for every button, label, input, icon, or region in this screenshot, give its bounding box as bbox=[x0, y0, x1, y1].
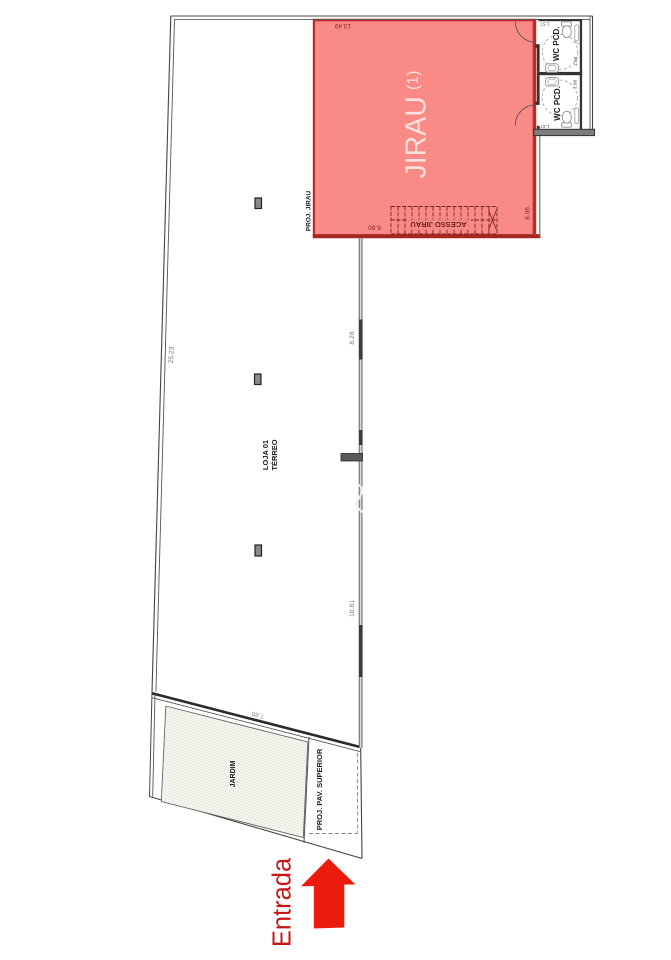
svg-text:1.98: 1.98 bbox=[573, 57, 579, 67]
svg-text:WC PCD.: WC PCD. bbox=[552, 26, 561, 61]
svg-text:8.28: 8.28 bbox=[349, 331, 356, 344]
svg-text:PROJ. JIRAU: PROJ. JIRAU bbox=[305, 191, 312, 232]
svg-text:PROJ. PAV. SUPERIOR: PROJ. PAV. SUPERIOR bbox=[315, 748, 324, 830]
svg-text:TÉRREO: TÉRREO bbox=[270, 439, 279, 470]
svg-text:13.49: 13.49 bbox=[334, 22, 351, 29]
svg-text:JARDIM: JARDIM bbox=[230, 760, 237, 787]
svg-text:8.06: 8.06 bbox=[525, 207, 532, 220]
svg-text:6.60: 6.60 bbox=[368, 224, 381, 231]
svg-text:LOJA 01: LOJA 01 bbox=[261, 440, 270, 470]
svg-text:25.23: 25.23 bbox=[168, 346, 176, 363]
svg-text:7.88: 7.88 bbox=[251, 709, 265, 719]
svg-text:1.98: 1.98 bbox=[572, 80, 578, 90]
svg-text:ACESSO JIRAU: ACESSO JIRAU bbox=[410, 220, 466, 229]
svg-text:Entrada: Entrada bbox=[269, 857, 297, 947]
svg-text:10.81: 10.81 bbox=[349, 600, 356, 617]
svg-text:1.57: 1.57 bbox=[540, 20, 550, 26]
svg-text:WC PCD.: WC PCD. bbox=[553, 86, 562, 121]
svg-text:1.57: 1.57 bbox=[540, 123, 550, 129]
